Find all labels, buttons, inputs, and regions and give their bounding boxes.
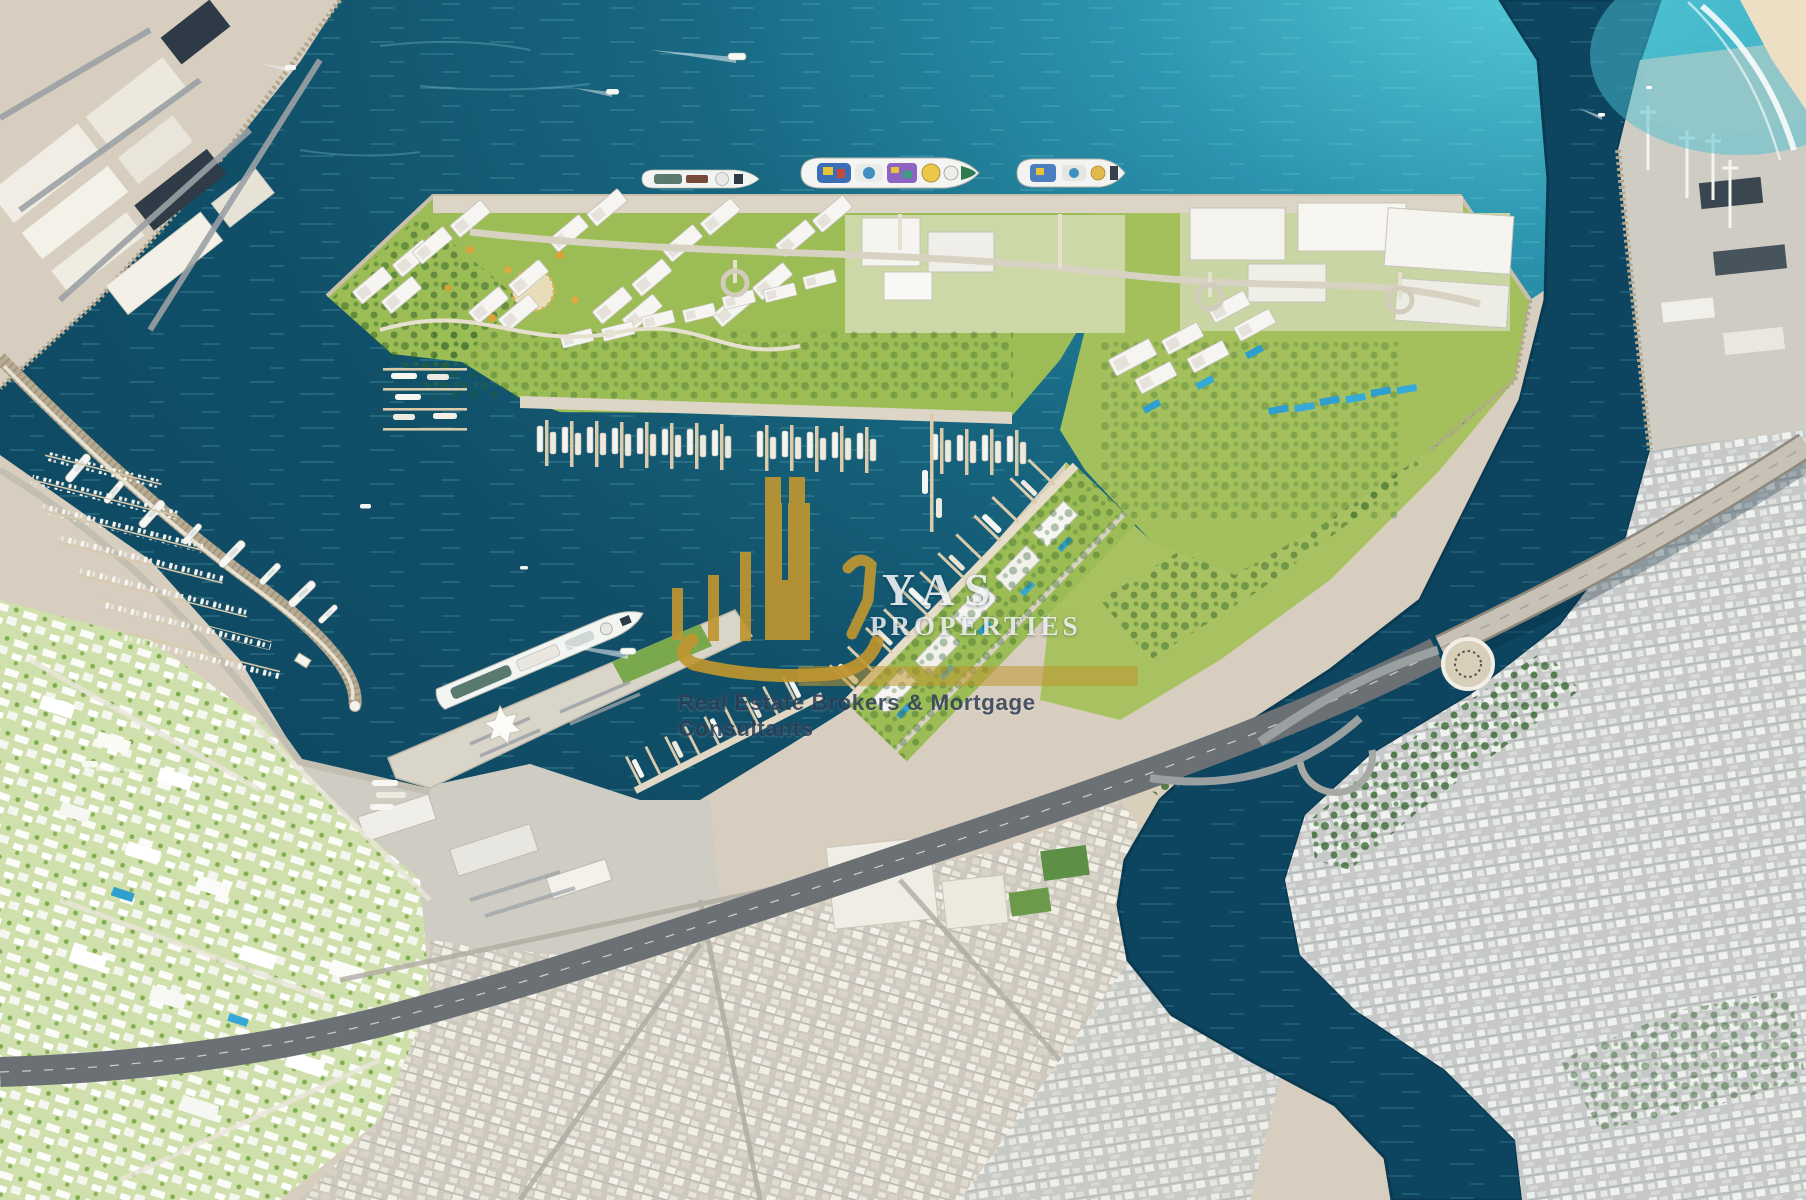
- breakwater-head: [350, 701, 361, 712]
- speedboat-icon: [520, 566, 528, 570]
- aerial-masterplan-image: YAS PROPERTIES Real Estate Brokers & Mor…: [0, 0, 1806, 1200]
- cruise-ship-icon: [1017, 159, 1125, 187]
- roundabout-park: [1443, 639, 1493, 689]
- aerial-scene: [0, 0, 1806, 1200]
- speedboat-icon: [360, 504, 371, 509]
- cruise-ship-icon: [642, 170, 759, 188]
- jetty: [930, 414, 934, 532]
- cruise-ship-icon: [801, 158, 979, 188]
